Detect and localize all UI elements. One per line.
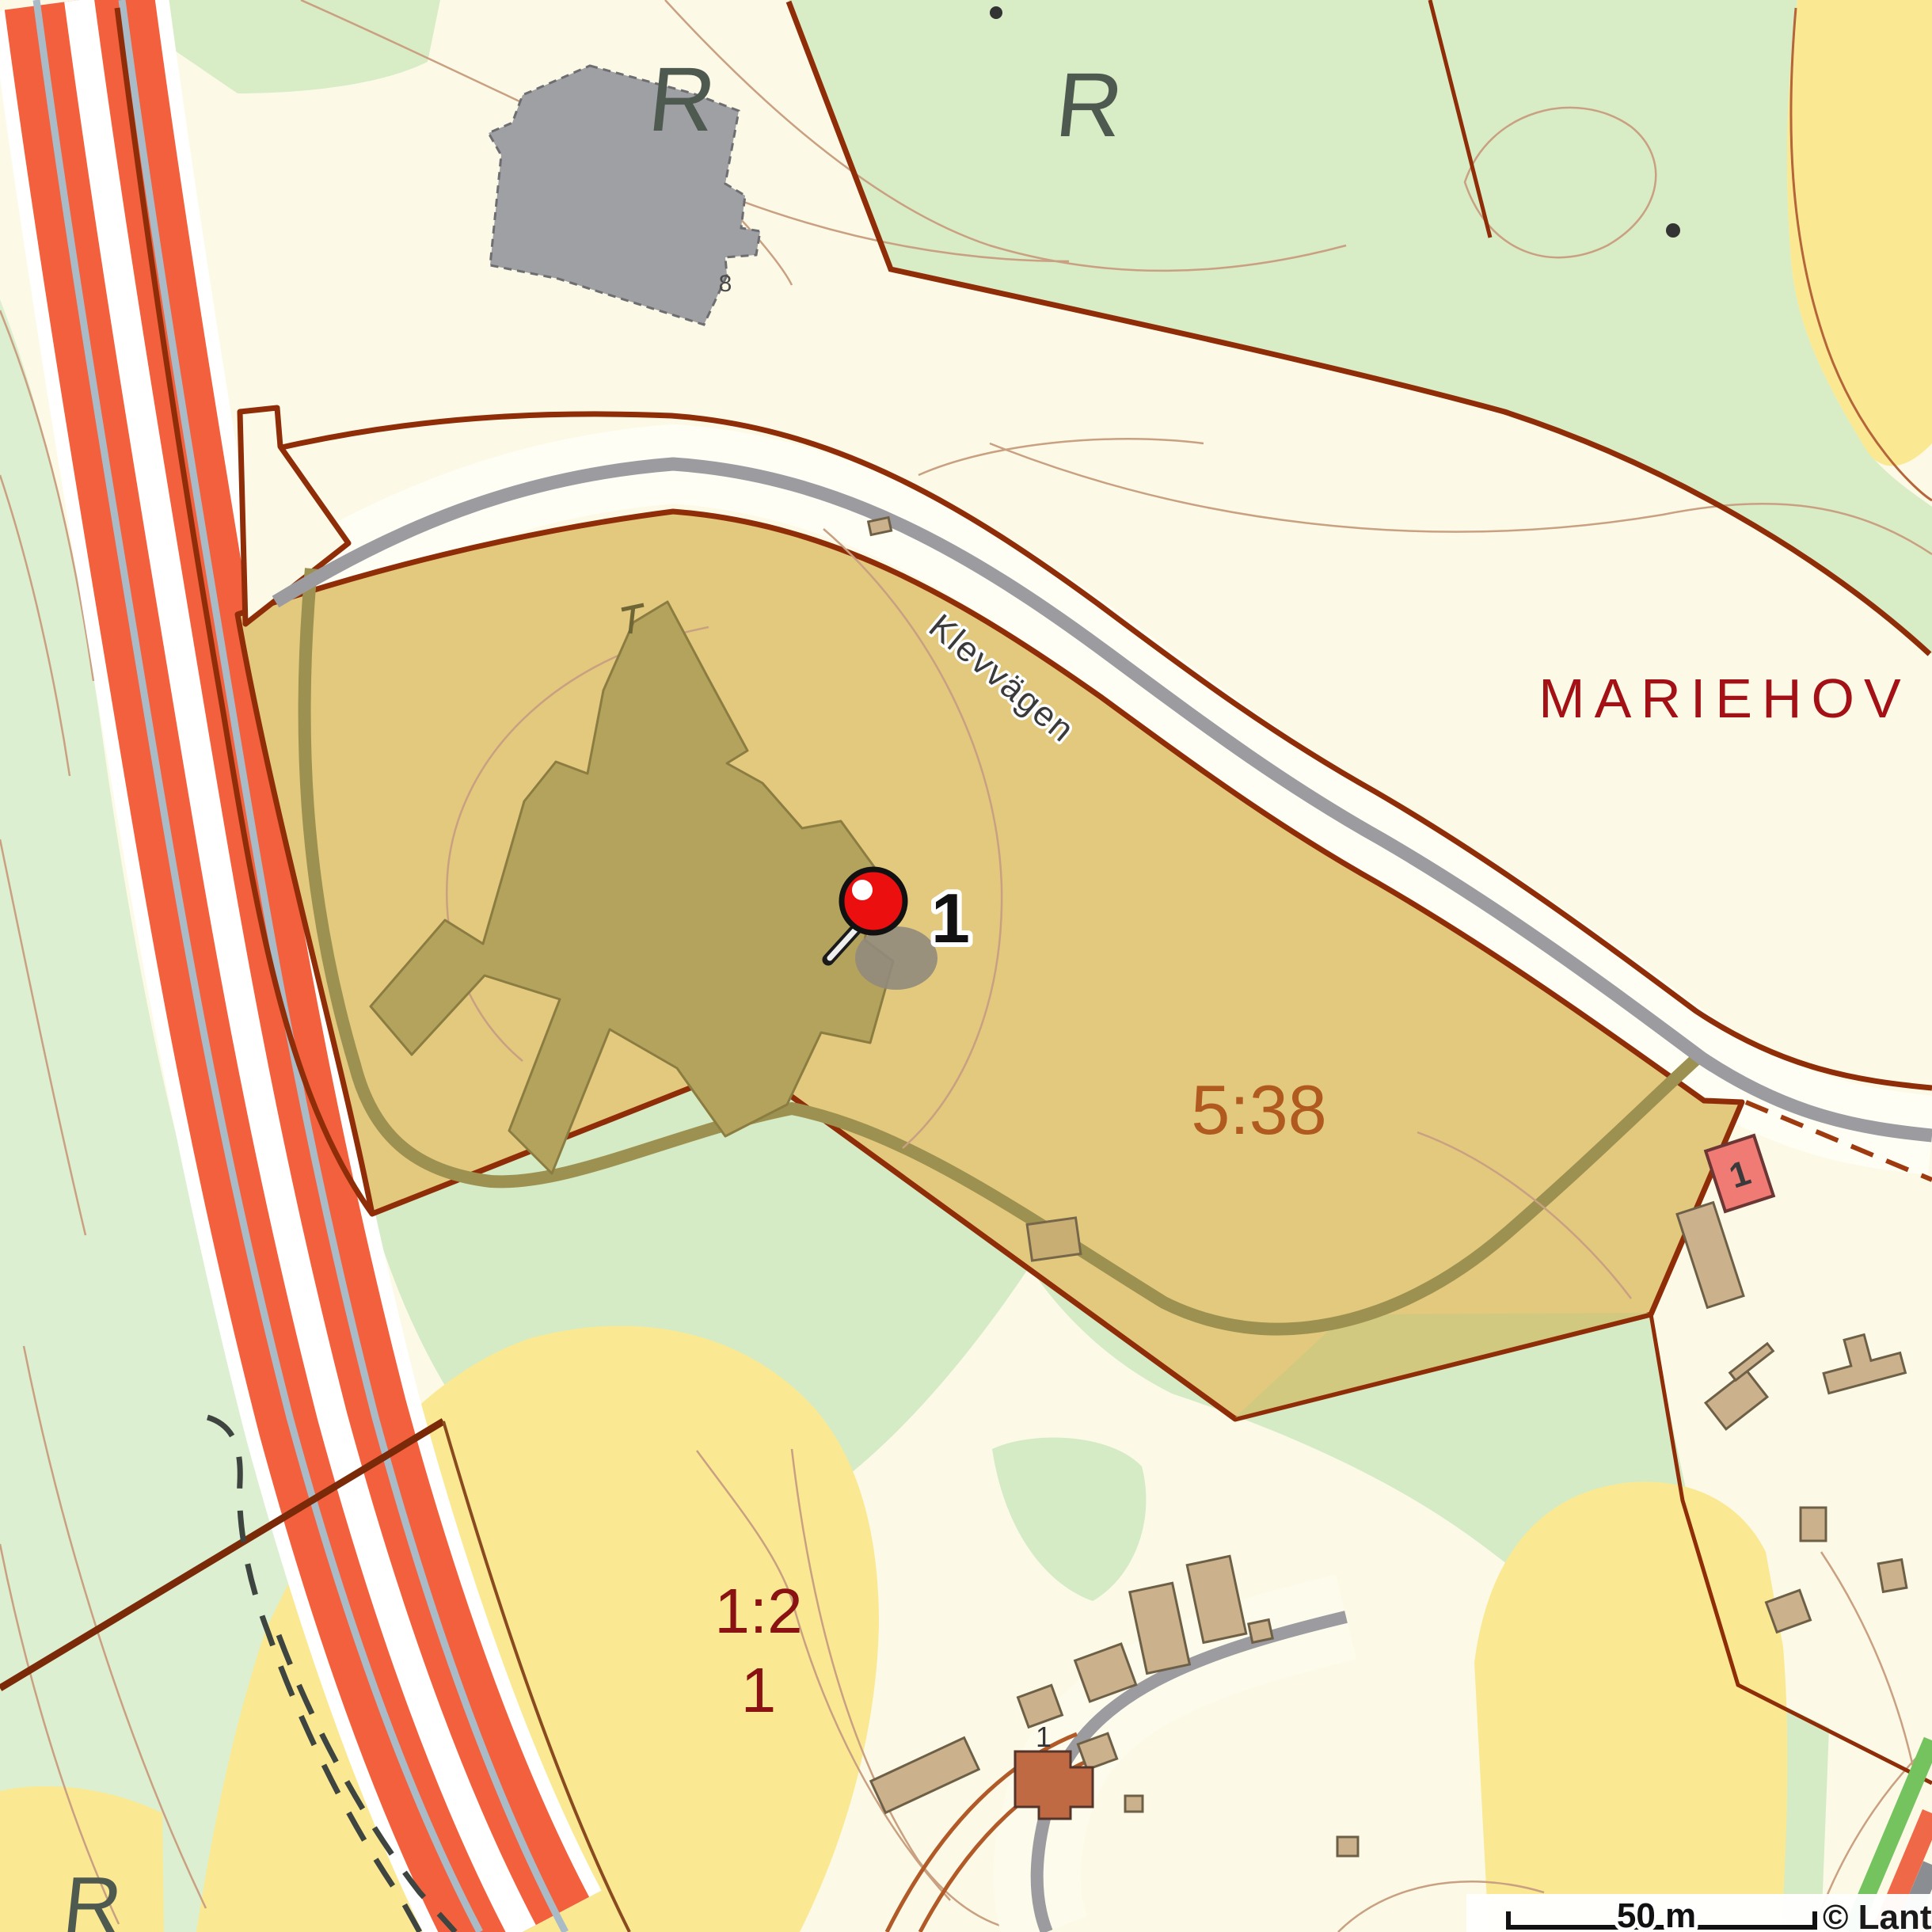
rune-icon: R — [645, 49, 721, 150]
place-name-label: MARIEHOV — [1538, 667, 1910, 729]
gray-building-label: 8 — [719, 271, 732, 297]
roadside-shed — [869, 517, 892, 534]
scalebar-label: 50 m — [1617, 1896, 1696, 1932]
map-canvas[interactable]: 8 1 1 — [0, 0, 1932, 1932]
pin-shadow — [855, 926, 937, 990]
parcel2-label-line2: 1 — [741, 1655, 777, 1725]
cadastral-map[interactable]: 8 1 1 — [0, 0, 1932, 1932]
parcel-small-building — [1027, 1218, 1081, 1261]
pin-head-icon — [842, 869, 905, 933]
pin-highlight — [852, 880, 873, 900]
point-symbol — [1666, 223, 1680, 238]
scalebar-strip: 50 m © Lantmäterie — [1466, 1894, 1932, 1932]
rune-icon: R — [59, 1861, 126, 1932]
brown-building-label: 1 — [1036, 1721, 1052, 1753]
rune-icon: R — [1052, 55, 1128, 156]
parcel2-label-line1: 1:2 — [714, 1576, 802, 1646]
parcel-number-label: 5:38 — [1191, 1071, 1326, 1149]
pin-number-label: 1 — [931, 879, 970, 957]
point-symbol — [990, 6, 1002, 19]
attribution-label: © Lantmäterie — [1823, 1898, 1932, 1932]
